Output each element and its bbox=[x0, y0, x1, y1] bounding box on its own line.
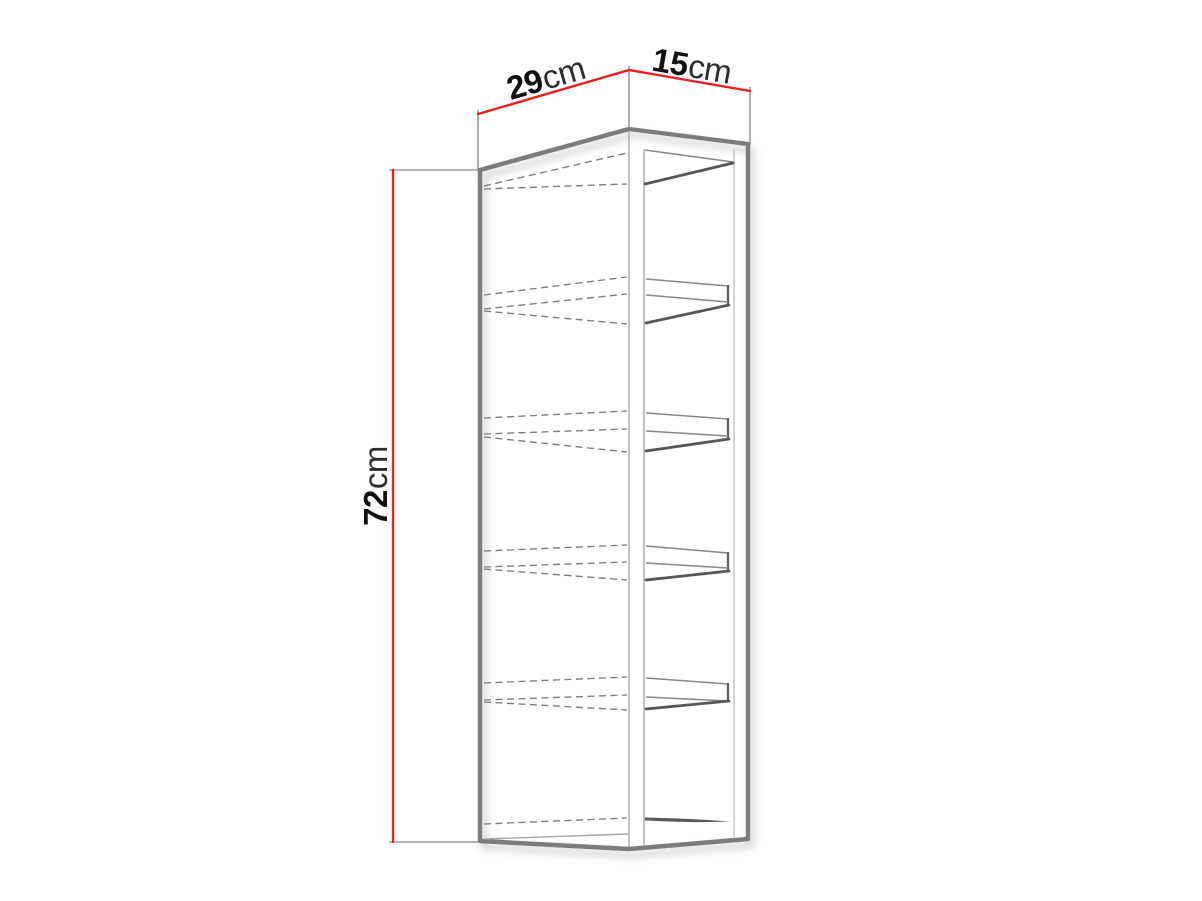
shelf-top-edge bbox=[646, 678, 728, 684]
product-dimension-diagram: 29cm 15cm 72cm bbox=[0, 0, 1202, 901]
dimension-label-15cm: 15cm bbox=[650, 41, 735, 91]
shelf-hidden-edge bbox=[484, 429, 627, 434]
shelf-underside-edge bbox=[646, 439, 729, 451]
shelf-hidden-edge bbox=[484, 569, 627, 580]
shelf-bottom-edge bbox=[646, 697, 728, 701]
dimension-labels: 29cm 15cm 72cm bbox=[357, 41, 734, 526]
shelf-underside-edge bbox=[646, 701, 729, 709]
shelf-hidden-edge bbox=[484, 677, 627, 683]
cabinet-shelf bbox=[484, 677, 729, 710]
cabinet-shelf bbox=[484, 277, 729, 324]
shelf-top-edge bbox=[646, 546, 728, 553]
dimension-label-29cm: 29cm bbox=[502, 49, 589, 107]
cabinet-bottom-panel bbox=[484, 818, 731, 840]
shelf-hidden-edge bbox=[484, 562, 627, 567]
shelf-bottom-edge bbox=[646, 431, 728, 436]
shelf-hidden-edge bbox=[484, 311, 627, 324]
top-panel-underside-edge bbox=[645, 163, 733, 184]
top-panel-hidden-edge bbox=[484, 153, 627, 186]
cabinet-shelf bbox=[484, 545, 729, 580]
shelf-bottom-edge bbox=[646, 563, 728, 568]
cabinet-shelf bbox=[484, 411, 729, 452]
shelf-top-edge bbox=[646, 413, 728, 419]
dimension-extension-lines bbox=[389, 66, 750, 842]
shelf-hidden-edge bbox=[484, 545, 627, 551]
dimension-lines bbox=[393, 70, 750, 842]
dimension-label-72cm: 72cm bbox=[357, 446, 394, 526]
shelf-top-edge bbox=[646, 279, 728, 286]
cabinet-top-panel bbox=[484, 150, 733, 189]
top-panel-front-edge bbox=[645, 150, 733, 162]
shelf-hidden-edge bbox=[484, 437, 627, 452]
shelf-hidden-edge bbox=[484, 695, 627, 700]
shelf-hidden-edge bbox=[484, 294, 627, 309]
shelf-underside-edge bbox=[646, 305, 729, 323]
shelf-hidden-edge bbox=[484, 277, 627, 295]
shelf-hidden-edge bbox=[484, 411, 627, 418]
cabinet-body-outline bbox=[480, 129, 748, 849]
bottom-panel-hidden-edge bbox=[484, 818, 627, 824]
cabinet-inner-edges bbox=[629, 131, 734, 847]
cabinet-outline-path bbox=[480, 129, 748, 849]
shelf-hidden-edge bbox=[484, 702, 627, 710]
top-panel-hidden-edge bbox=[484, 184, 627, 189]
bottom-panel-inner-edge bbox=[484, 834, 628, 839]
shelf-bottom-edge bbox=[646, 295, 728, 302]
shelf-underside-edge bbox=[646, 571, 729, 580]
bottom-panel-front-edge bbox=[645, 818, 731, 823]
cabinet-dimension-drawing: 29cm 15cm 72cm bbox=[0, 0, 1202, 901]
